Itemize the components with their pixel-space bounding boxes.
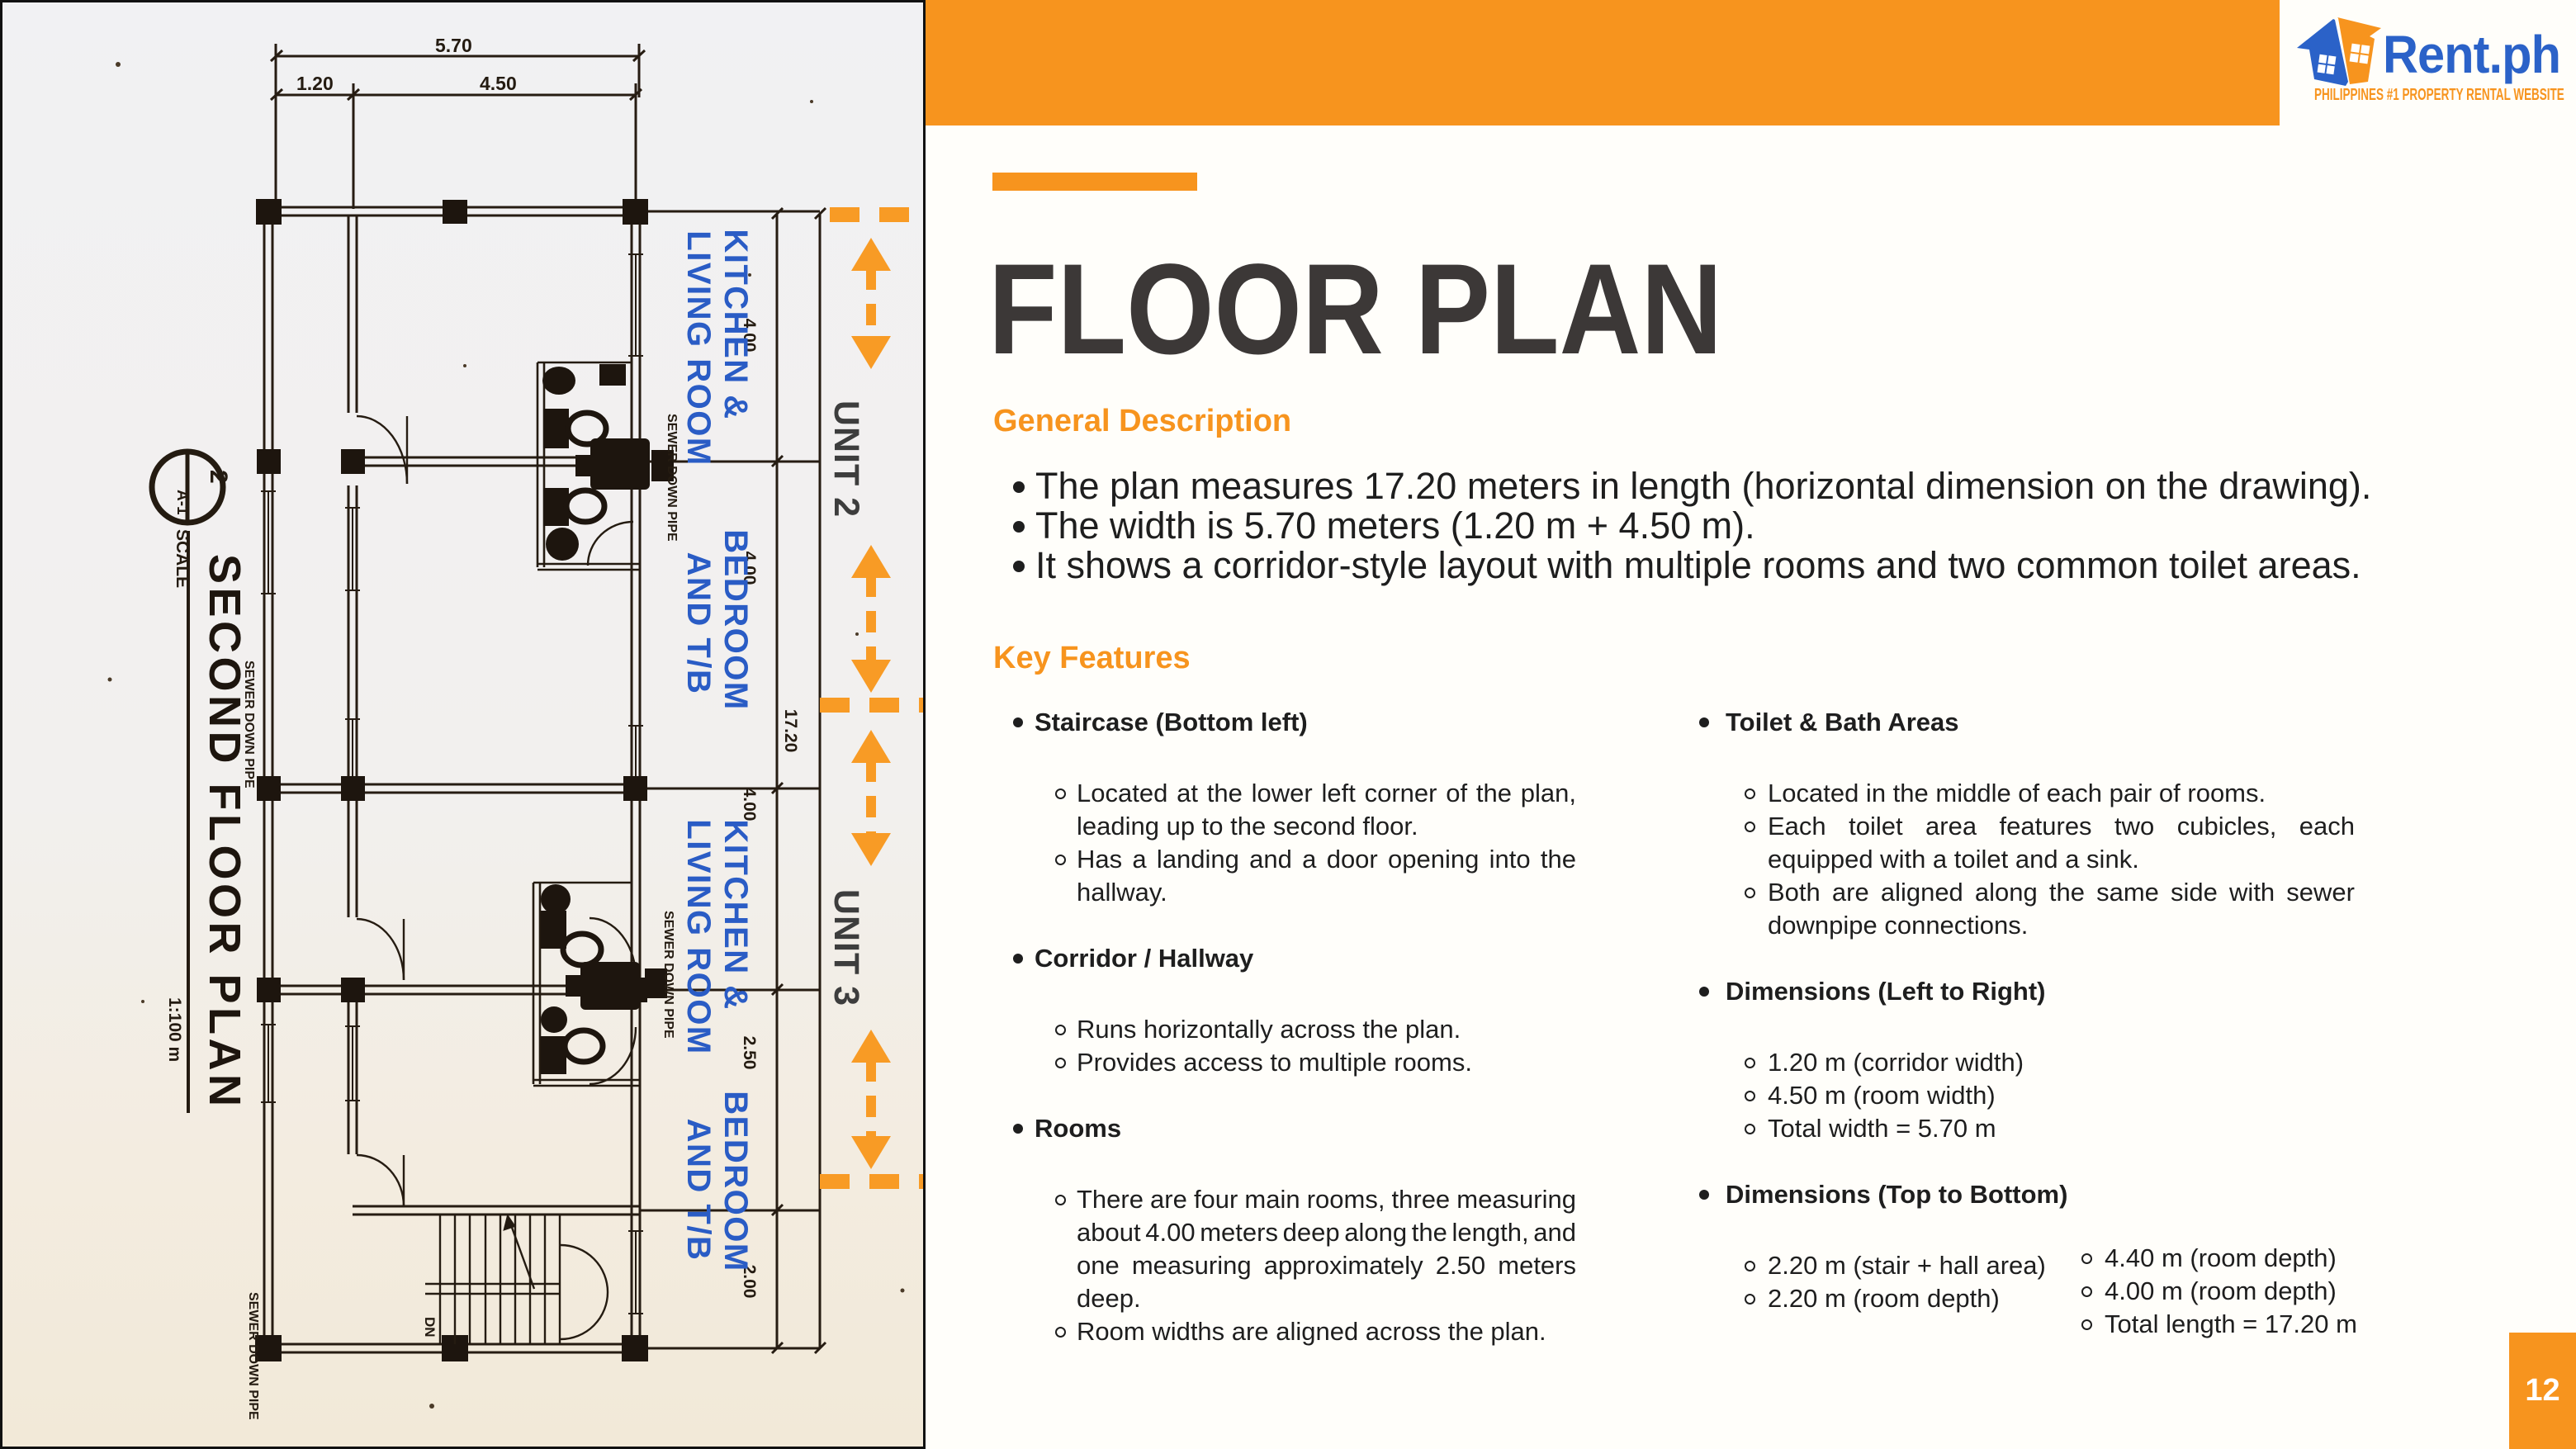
svg-text:LIVING ROOM: LIVING ROOM xyxy=(680,819,717,1054)
svg-text:4.00: 4.00 xyxy=(740,788,759,822)
svg-text:SECOND FLOOR PLAN: SECOND FLOOR PLAN xyxy=(200,554,249,1110)
svg-text:Rent.ph: Rent.ph xyxy=(2383,26,2560,84)
svg-text:1:100 m: 1:100 m xyxy=(165,997,184,1062)
svg-text:2: 2 xyxy=(205,470,232,484)
svg-text:SCALE: SCALE xyxy=(173,529,192,588)
svg-text:4.50: 4.50 xyxy=(480,73,517,94)
svg-text:SEWER DOWN PIPE: SEWER DOWN PIPE xyxy=(661,911,675,1039)
svg-text:PHILIPPINES #1 PROPERTY RENTAL: PHILIPPINES #1 PROPERTY RENTAL WEBSITE xyxy=(2314,85,2564,103)
svg-text:17.20: 17.20 xyxy=(781,709,800,753)
svg-text:DN: DN xyxy=(422,1317,438,1338)
svg-text:5.70: 5.70 xyxy=(435,35,472,56)
svg-text:LIVING ROOM: LIVING ROOM xyxy=(680,230,717,466)
svg-text:1.20: 1.20 xyxy=(296,73,334,94)
svg-text:A-1: A-1 xyxy=(173,490,191,515)
svg-text:BEDROOM: BEDROOM xyxy=(717,1091,754,1271)
svg-text:KITCHEN &: KITCHEN & xyxy=(717,229,754,419)
svg-text:AND T/B: AND T/B xyxy=(680,1119,717,1262)
svg-text:SEWER DOWN PIPE: SEWER DOWN PIPE xyxy=(665,414,679,542)
svg-text:SEWER DOWN PIPE: SEWER DOWN PIPE xyxy=(246,1292,260,1420)
svg-text:BEDROOM: BEDROOM xyxy=(717,529,754,710)
svg-text:AND T/B: AND T/B xyxy=(680,552,717,695)
svg-text:UNIT 3: UNIT 3 xyxy=(826,889,866,1006)
svg-text:UNIT 2: UNIT 2 xyxy=(826,400,866,518)
svg-text:2.50: 2.50 xyxy=(740,1036,759,1070)
svg-text:KITCHEN &: KITCHEN & xyxy=(717,819,754,1010)
